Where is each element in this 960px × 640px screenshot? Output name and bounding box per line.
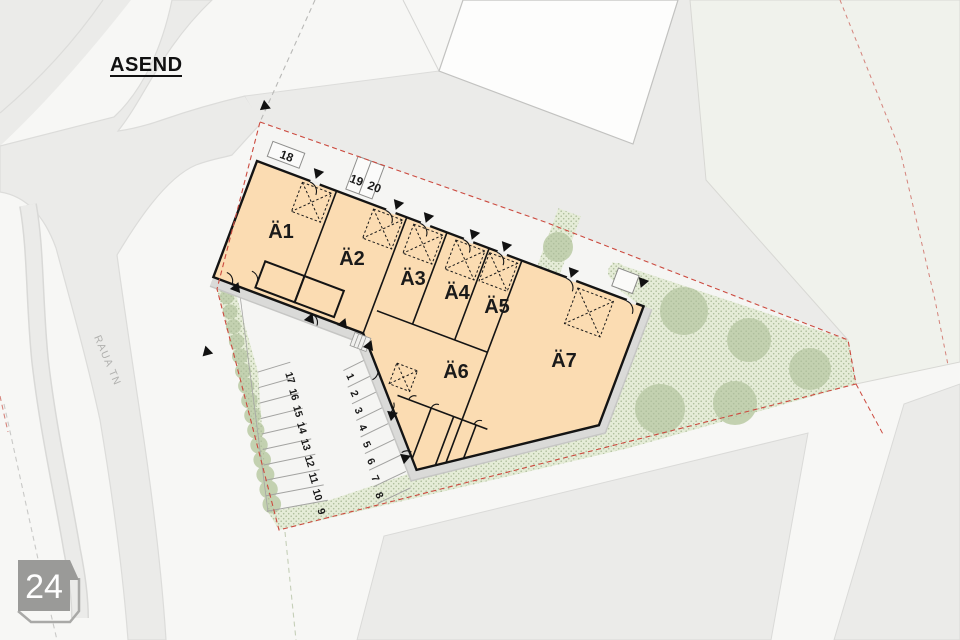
svg-text:Ä3: Ä3 bbox=[400, 267, 426, 290]
svg-text:Ä2: Ä2 bbox=[339, 247, 365, 270]
svg-text:ASEND: ASEND bbox=[110, 54, 183, 76]
svg-text:Ä6: Ä6 bbox=[443, 360, 469, 383]
svg-text:Ä7: Ä7 bbox=[551, 349, 577, 372]
svg-text:Ä1: Ä1 bbox=[268, 220, 294, 243]
svg-text:Ä5: Ä5 bbox=[484, 295, 510, 318]
svg-text:Ä4: Ä4 bbox=[444, 281, 470, 304]
svg-text:24: 24 bbox=[25, 568, 63, 606]
